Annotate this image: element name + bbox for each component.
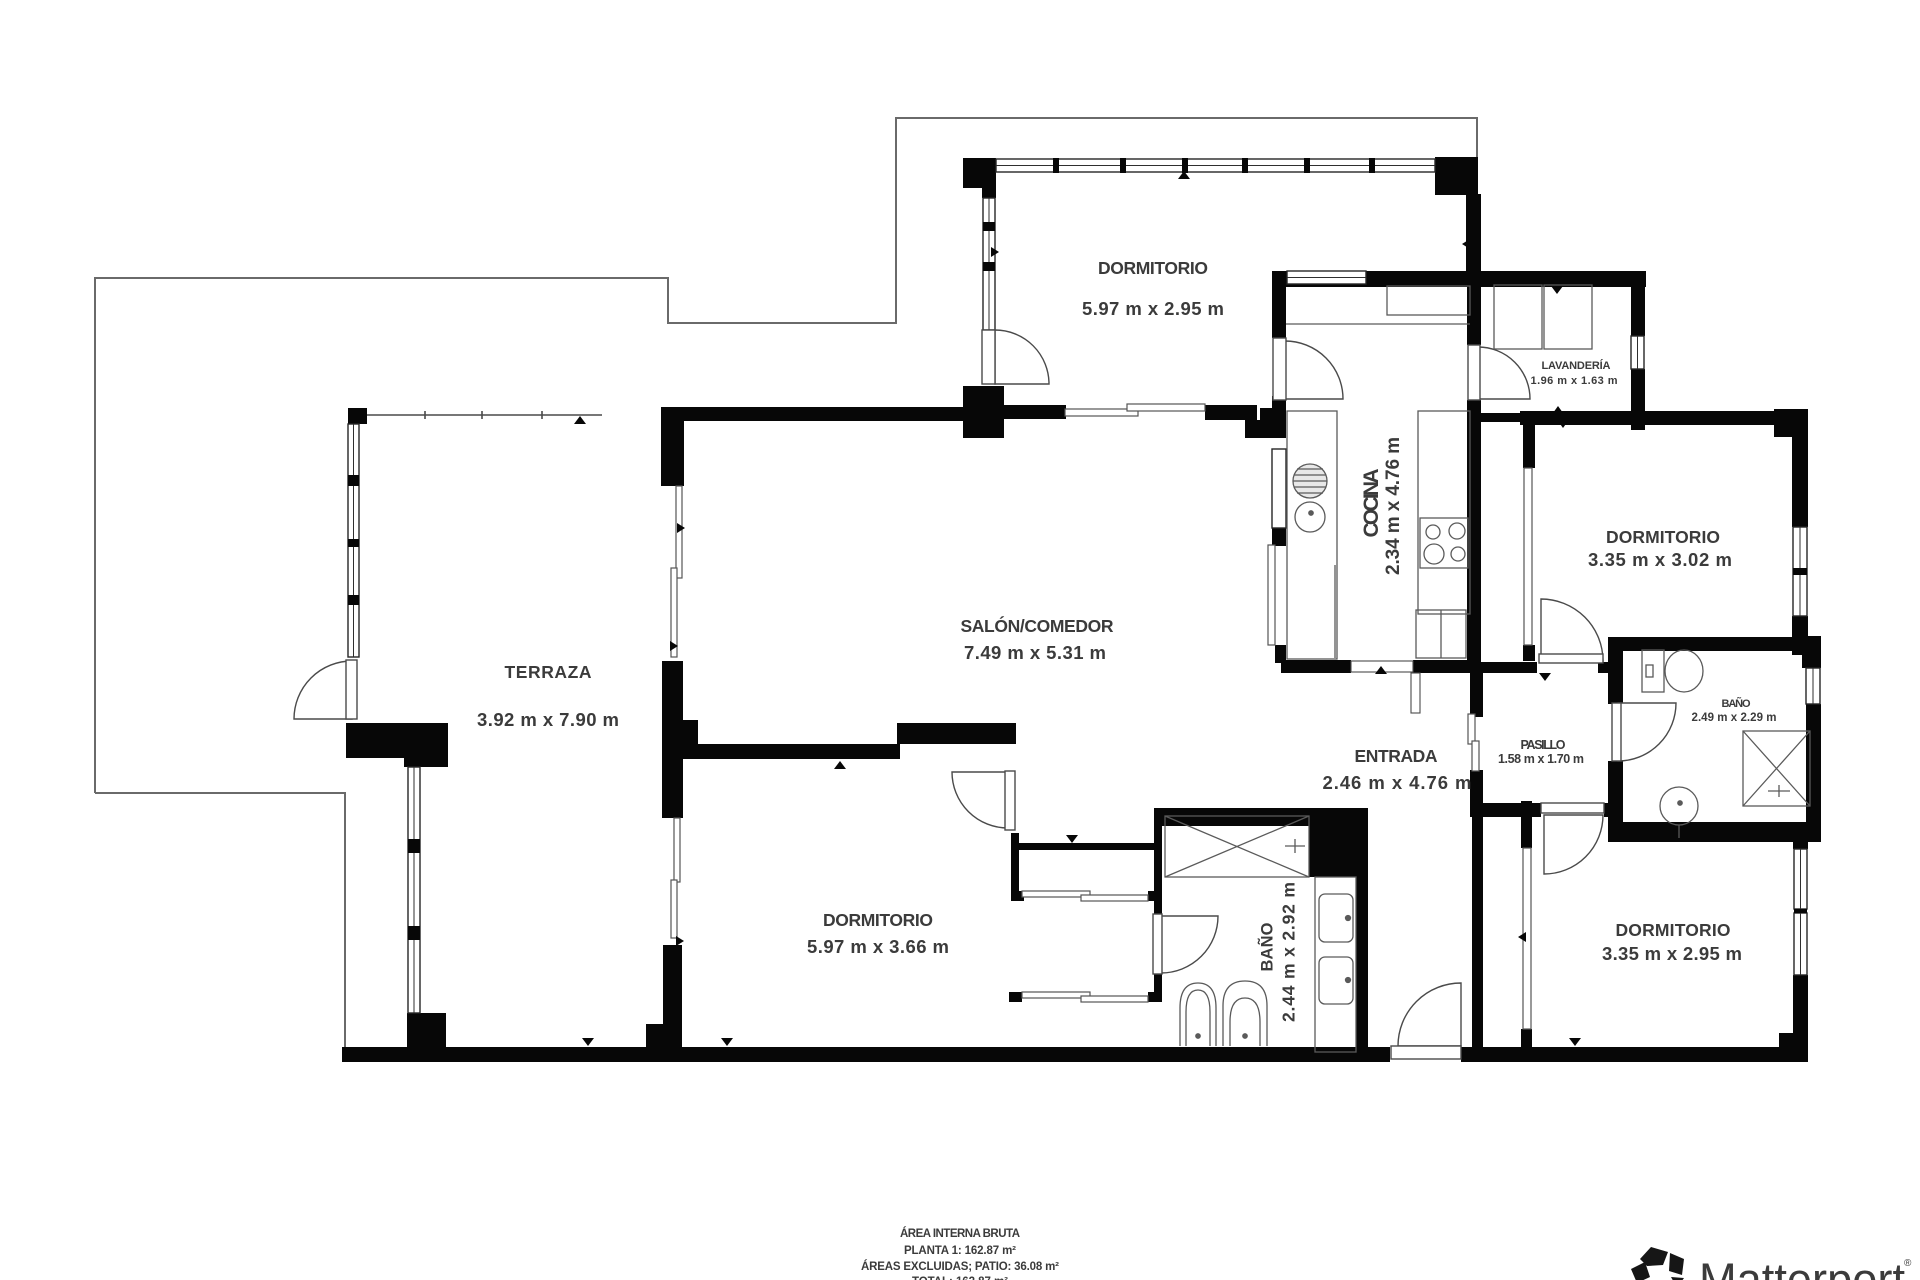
svg-text:2.46 m x 4.76 m: 2.46 m x 4.76 m (1323, 772, 1472, 793)
svg-text:ÁREA INTERNA BRUTA: ÁREA INTERNA BRUTA (900, 1227, 1020, 1240)
svg-text:1.58 m x 1.70 m: 1.58 m x 1.70 m (1498, 752, 1584, 766)
svg-text:SALÓN/COMEDOR: SALÓN/COMEDOR (961, 615, 1114, 636)
svg-text:BAÑO: BAÑO (1722, 697, 1751, 710)
svg-text:3.35 m x 3.02 m: 3.35 m x 3.02 m (1588, 549, 1732, 570)
svg-text:PLANTA 1: 162.87 m²: PLANTA 1: 162.87 m² (904, 1245, 1016, 1257)
svg-text:ÁREAS EXCLUIDAS; PATIO: 36.08: ÁREAS EXCLUIDAS; PATIO: 36.08 m² (861, 1260, 1059, 1273)
svg-text:2.44 m x 2.92 m: 2.44 m x 2.92 m (1279, 882, 1299, 1022)
svg-text:LAVANDERÍA: LAVANDERÍA (1542, 359, 1611, 372)
svg-text:PASILLO: PASILLO (1521, 738, 1566, 752)
svg-text:Matterport: Matterport (1699, 1253, 1905, 1280)
svg-text:2.49 m x 2.29 m: 2.49 m x 2.29 m (1692, 712, 1777, 724)
svg-text:DORMITORIO: DORMITORIO (1606, 527, 1720, 547)
svg-text:ENTRADA: ENTRADA (1355, 746, 1438, 766)
svg-text:TERRAZA: TERRAZA (505, 662, 592, 682)
svg-text:DORMITORIO: DORMITORIO (823, 910, 933, 930)
svg-text:®: ® (1904, 1258, 1912, 1269)
svg-text:1.96 m x 1.63 m: 1.96 m x 1.63 m (1531, 375, 1618, 387)
svg-text:2.34 m x 4.76 m: 2.34 m x 4.76 m (1383, 437, 1404, 575)
svg-text:3.35 m x 2.95 m: 3.35 m x 2.95 m (1602, 943, 1742, 964)
svg-text:3.92 m x 7.90 m: 3.92 m x 7.90 m (477, 709, 619, 730)
svg-text:TOTAL: 162.87 m²: TOTAL: 162.87 m² (912, 1276, 1008, 1280)
svg-text:DORMITORIO: DORMITORIO (1616, 920, 1731, 940)
svg-text:DORMITORIO: DORMITORIO (1098, 258, 1208, 278)
svg-text:BAÑO: BAÑO (1256, 922, 1276, 971)
svg-text:5.97 m x 2.95 m: 5.97 m x 2.95 m (1082, 298, 1224, 319)
svg-text:COCINA: COCINA (1360, 469, 1383, 538)
svg-text:7.49 m x 5.31 m: 7.49 m x 5.31 m (964, 642, 1106, 663)
svg-text:5.97 m x 3.66 m: 5.97 m x 3.66 m (807, 936, 949, 957)
